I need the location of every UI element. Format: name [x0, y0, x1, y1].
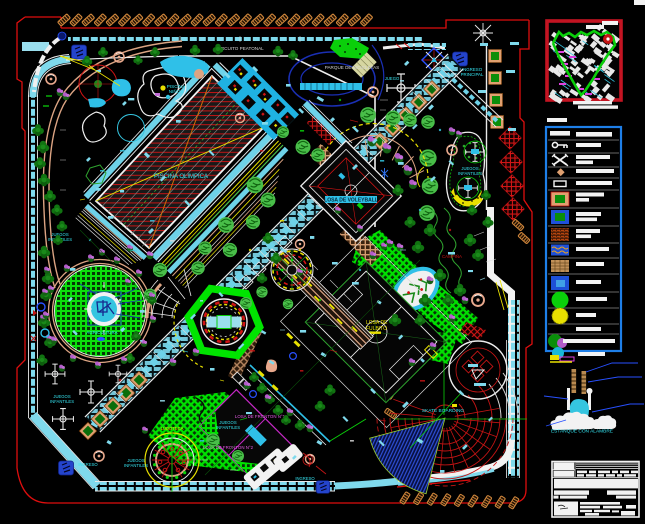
svg-text:AGRICULTURA: AGRICULTURA: [86, 330, 117, 335]
svg-text:INFANTILES: INFANTILES: [50, 399, 74, 404]
svg-text:INFANTILES: INFANTILES: [124, 463, 148, 468]
svg-text:INFANTILES: INFANTILES: [216, 425, 240, 430]
svg-text:LOSA DE VOLEYBALL: LOSA DE VOLEYBALL: [324, 198, 378, 204]
svg-text:NIÑOS: NIÑOS: [169, 88, 184, 94]
svg-text:SKATE BOARDING: SKATE BOARDING: [422, 408, 465, 414]
svg-text:CAMPIÑA: CAMPIÑA: [442, 254, 462, 259]
svg-text:INFANTILES: INFANTILES: [458, 171, 482, 176]
svg-text:ESTANQUE CON ALAMBRE: ESTANQUE CON ALAMBRE: [551, 429, 613, 435]
svg-text:FULBITO: FULBITO: [366, 326, 387, 332]
svg-text:INGRESO: INGRESO: [295, 476, 315, 481]
svg-text:PARQUE DE BICICLETAS: PARQUE DE BICICLETAS: [325, 65, 379, 70]
svg-text:PRINCIPAL: PRINCIPAL: [461, 72, 484, 77]
svg-text:LUDOTECA: LUDOTECA: [161, 426, 184, 431]
svg-text:JUEGO: JUEGO: [385, 76, 400, 81]
svg-text:INGRESO: INGRESO: [78, 462, 98, 467]
svg-text:CIRCUITO PEATONAL: CIRCUITO PEATONAL: [216, 46, 264, 51]
